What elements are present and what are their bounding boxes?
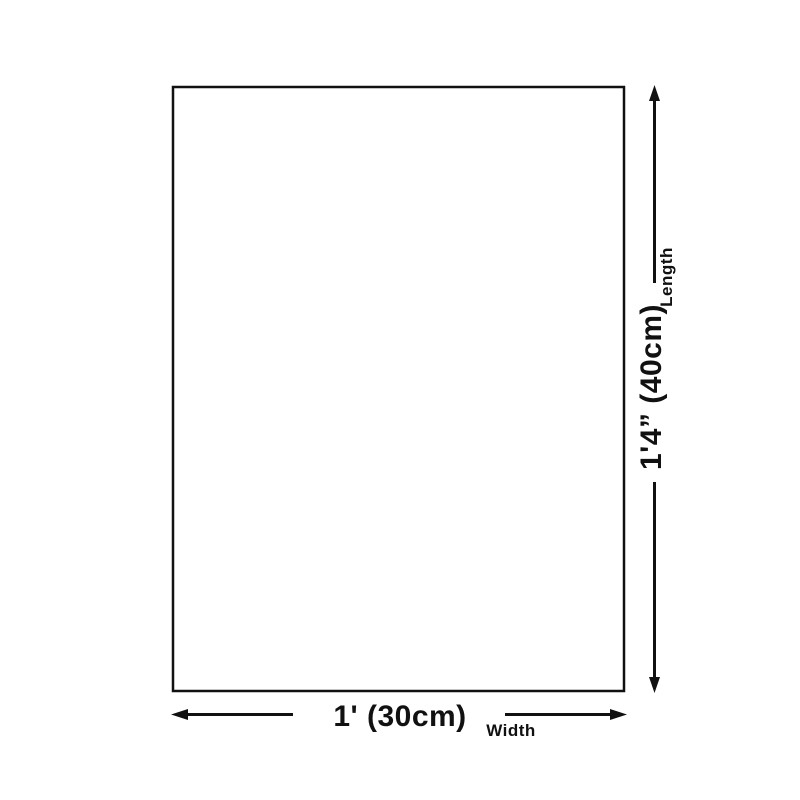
width-arrow-right-head-icon [610, 709, 627, 720]
length-arrow-down-head-icon [649, 677, 660, 693]
product-outline-rectangle [173, 87, 624, 691]
length-arrow-up-head-icon [649, 85, 660, 101]
length-dimension-value: 1'4” (40cm) [635, 302, 669, 472]
length-axis-label: Length [658, 232, 676, 322]
diagram-graphics [0, 0, 800, 800]
width-arrow-left-head-icon [171, 709, 188, 720]
width-axis-label: Width [461, 722, 561, 740]
dimension-diagram: 1'4” (40cm) Length 1' (30cm) Width [0, 0, 800, 800]
